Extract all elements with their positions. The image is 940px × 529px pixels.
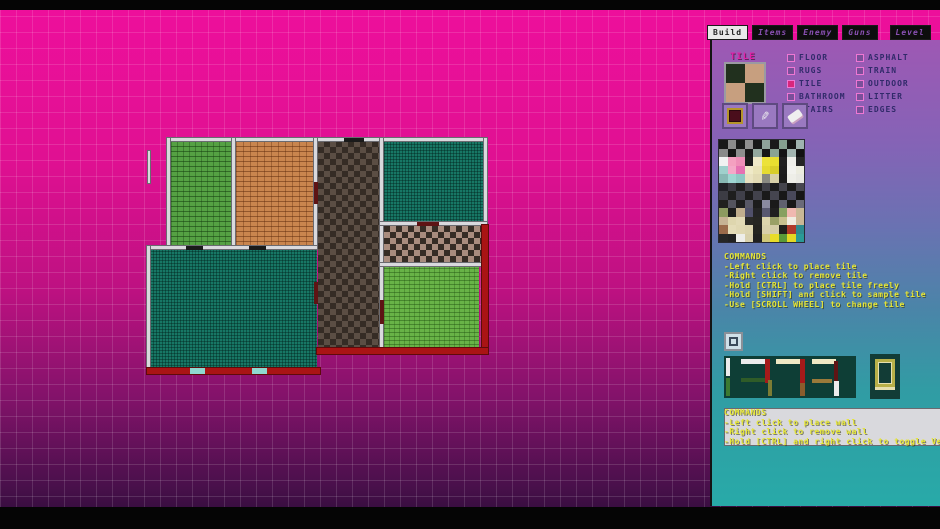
palette-tile[interactable] [753, 225, 762, 234]
palette-tile[interactable] [719, 149, 728, 158]
palette-tile[interactable] [796, 208, 805, 217]
checkbox-litter[interactable] [856, 93, 864, 101]
category-label: OUTDOOR [868, 79, 909, 88]
palette-tile[interactable] [787, 157, 796, 166]
palette-tile[interactable] [719, 217, 728, 226]
door-segment[interactable] [314, 182, 318, 204]
palette-tile[interactable] [796, 149, 805, 158]
wall-sample-segment[interactable] [726, 378, 730, 396]
category-label: TRAIN [868, 66, 897, 75]
palette-tile[interactable] [770, 234, 779, 243]
tab-guns[interactable]: Guns [842, 25, 877, 40]
eyedropper-icon: ✎ [760, 108, 771, 123]
wall-segment[interactable] [483, 137, 488, 226]
command-line: -Hold [SHIFT] and click to sample tile [724, 290, 926, 300]
tab-level[interactable]: Level [890, 25, 931, 40]
checkbox-tile[interactable] [787, 80, 795, 88]
palette-tile[interactable] [787, 208, 796, 217]
palette-tile[interactable] [736, 191, 745, 200]
palette-tile[interactable] [745, 200, 754, 209]
palette-tile[interactable] [753, 166, 762, 175]
category-label: LITTER [868, 92, 903, 101]
palette-tile[interactable] [719, 157, 728, 166]
palette-tile[interactable] [779, 225, 788, 234]
palette-tile[interactable] [736, 200, 745, 209]
palette-tile[interactable] [719, 234, 728, 243]
palette-tile[interactable] [762, 183, 771, 192]
category-bathroom[interactable]: BATHROOM [787, 90, 865, 103]
build-panel: TILE FLOORRUGSTILEBATHROOMSTAIRS ASPHALT… [710, 40, 940, 506]
command-line: -Hold [CTRL] to place tile freely [724, 281, 926, 291]
palette-tile[interactable] [770, 140, 779, 149]
palette-tile[interactable] [719, 183, 728, 192]
palette-tile[interactable] [719, 225, 728, 234]
palette-tile[interactable] [728, 208, 737, 217]
palette-tile[interactable] [787, 183, 796, 192]
room-dark-checker-hall[interactable] [318, 141, 381, 351]
command-line: -Right click to remove tile [724, 271, 926, 281]
palette-tile[interactable] [745, 183, 754, 192]
letterbox-bottom [0, 507, 940, 529]
wall-segment[interactable] [146, 245, 151, 372]
checkbox-train[interactable] [856, 67, 864, 75]
wall-segment[interactable] [147, 150, 151, 184]
palette-tile[interactable] [770, 183, 779, 192]
palette-tile[interactable] [753, 217, 762, 226]
wall-sample-segment[interactable] [741, 378, 765, 382]
command-line: -Use [SCROLL WHEEL] to change tile [724, 300, 926, 310]
wall-sample-segment[interactable] [812, 359, 836, 364]
palette-tile[interactable] [787, 225, 796, 234]
outer-red-wall[interactable] [316, 347, 489, 355]
category-tile[interactable]: TILE [787, 77, 865, 90]
category-train[interactable]: TRAIN [856, 64, 934, 77]
palette-tile[interactable] [787, 174, 796, 183]
palette-tile[interactable] [779, 140, 788, 149]
palette-tile[interactable] [745, 191, 754, 200]
wall-sample-segment[interactable] [726, 358, 730, 376]
palette-tile[interactable] [779, 217, 788, 226]
palette-tile[interactable] [719, 200, 728, 209]
palette-tile[interactable] [745, 157, 754, 166]
wall-commands-title: COMMANDS [724, 408, 940, 418]
room-green-brick-room[interactable] [171, 141, 232, 247]
palette-tile[interactable] [745, 140, 754, 149]
palette-tile[interactable] [762, 191, 771, 200]
palette-tile[interactable] [728, 140, 737, 149]
category-outdoor[interactable]: OUTDOOR [856, 77, 934, 90]
palette-tile[interactable] [728, 183, 737, 192]
palette-tile[interactable] [753, 200, 762, 209]
room-pink-checker-hall[interactable] [384, 226, 483, 264]
palette-tile[interactable] [728, 234, 737, 243]
palette-tile[interactable] [770, 191, 779, 200]
wall-segment[interactable] [231, 137, 236, 248]
wall-sample-segment[interactable] [834, 361, 838, 381]
selected-wall-tile[interactable] [870, 354, 900, 399]
palette-tile[interactable] [719, 140, 728, 149]
wall-sample-segment[interactable] [741, 359, 765, 364]
palette-tile[interactable] [770, 149, 779, 158]
fill-tool-button[interactable] [722, 103, 748, 129]
palette-tile[interactable] [762, 217, 771, 226]
wall-segment[interactable] [166, 137, 488, 142]
palette-tile[interactable] [796, 140, 805, 149]
palette-tile[interactable] [787, 149, 796, 158]
palette-tile[interactable] [779, 149, 788, 158]
wall-segment[interactable] [146, 245, 318, 250]
palette-tile[interactable] [719, 166, 728, 175]
palette-tile[interactable] [762, 200, 771, 209]
tile-commands-title: COMMANDS [724, 252, 926, 262]
wall-sample-segment[interactable] [768, 380, 772, 396]
wall-commands-lines: -Left click to place wall-Right click to… [724, 418, 940, 447]
door-segment[interactable] [344, 138, 364, 142]
wall-sample-segment[interactable] [812, 379, 832, 383]
palette-tile[interactable] [779, 157, 788, 166]
palette-tile[interactable] [770, 157, 779, 166]
palette-tile[interactable] [736, 217, 745, 226]
palette-tile[interactable] [787, 166, 796, 175]
outer-red-wall[interactable] [146, 367, 321, 375]
palette-tile[interactable] [762, 208, 771, 217]
palette-tile[interactable] [796, 234, 805, 243]
palette-tile[interactable] [745, 149, 754, 158]
palette-tile[interactable] [762, 149, 771, 158]
checkbox-rugs[interactable] [787, 67, 795, 75]
palette-tile[interactable] [719, 174, 728, 183]
palette-tile[interactable] [796, 174, 805, 183]
eraser-tool-button[interactable] [782, 103, 808, 129]
door-segment[interactable] [314, 282, 318, 304]
palette-tile[interactable] [770, 174, 779, 183]
door-segment[interactable] [249, 246, 266, 250]
category-asphalt[interactable]: ASPHALT [856, 51, 934, 64]
category-rugs[interactable]: RUGS [787, 64, 865, 77]
tab-bar: BuildItemsEnemyGunsLevel [707, 25, 940, 40]
palette-tile[interactable] [745, 225, 754, 234]
palette-tile[interactable] [719, 208, 728, 217]
room-teal-room-bottom[interactable] [150, 250, 317, 369]
palette-tile[interactable] [787, 234, 796, 243]
command-line: -Hold [CTRL] and right click to toggle V… [724, 437, 940, 447]
wall-segment[interactable] [379, 262, 488, 267]
category-edges[interactable]: EDGES [856, 103, 934, 116]
tile-preview-quad [726, 83, 745, 102]
palette-tile[interactable] [779, 208, 788, 217]
door-segment[interactable] [186, 246, 203, 250]
wall-sample-segment[interactable] [800, 359, 805, 383]
palette-tile[interactable] [745, 208, 754, 217]
palette-tile[interactable] [770, 217, 779, 226]
palette-tile[interactable] [736, 183, 745, 192]
palette-tile[interactable] [762, 234, 771, 243]
room-light-green-room[interactable] [384, 267, 479, 349]
palette-tile[interactable] [762, 140, 771, 149]
checkbox-outdoor[interactable] [856, 80, 864, 88]
palette-tile[interactable] [728, 157, 737, 166]
tile-commands: COMMANDS -Left click to place tile-Right… [724, 252, 926, 309]
tool-bar: ✎ [722, 103, 808, 129]
room-teal-room-top[interactable] [384, 141, 483, 223]
room-orange-brick-room[interactable] [236, 141, 315, 247]
wall-palette-strip[interactable] [724, 356, 856, 398]
palette-tile[interactable] [796, 200, 805, 209]
palette-tile[interactable] [736, 208, 745, 217]
wall-segment[interactable] [166, 137, 171, 247]
palette-tile[interactable] [796, 217, 805, 226]
palette-tile[interactable] [728, 174, 737, 183]
category-label: BATHROOM [799, 92, 846, 101]
wall-mode-icon [729, 337, 738, 346]
palette-tile[interactable] [787, 217, 796, 226]
outer-red-wall[interactable] [481, 224, 489, 355]
eyedropper-tool-button[interactable]: ✎ [752, 103, 778, 129]
palette-tile[interactable] [753, 140, 762, 149]
palette-tile[interactable] [796, 225, 805, 234]
wall-commands: COMMANDS -Left click to place wall-Right… [724, 408, 940, 446]
palette-tile[interactable] [762, 166, 771, 175]
palette-tile[interactable] [796, 157, 805, 166]
palette-tile[interactable] [787, 191, 796, 200]
palette-tile[interactable] [745, 174, 754, 183]
palette-tile[interactable] [728, 191, 737, 200]
palette-tile[interactable] [753, 191, 762, 200]
palette-tile[interactable] [728, 200, 737, 209]
palette-tile[interactable] [770, 225, 779, 234]
door-segment[interactable] [380, 300, 384, 324]
tile-preview-quad [745, 64, 764, 83]
palette-tile[interactable] [753, 183, 762, 192]
eraser-icon [787, 109, 803, 124]
door-segment[interactable] [190, 368, 205, 374]
door-segment[interactable] [252, 368, 267, 374]
palette-tile[interactable] [753, 174, 762, 183]
command-line: -Left click to place tile [724, 262, 926, 272]
category-label: EDGES [868, 105, 897, 114]
palette-tile[interactable] [796, 183, 805, 192]
tile-category-column-right: ASPHALTTRAINOUTDOORLITTEREDGES [856, 51, 934, 116]
palette-tile[interactable] [728, 217, 737, 226]
fill-tool-icon [727, 108, 743, 124]
palette-tile[interactable] [779, 234, 788, 243]
tile-palette [718, 139, 805, 243]
palette-tile[interactable] [779, 183, 788, 192]
palette-tile[interactable] [762, 174, 771, 183]
palette-tile[interactable] [770, 200, 779, 209]
wall-sample-segment[interactable] [776, 359, 800, 364]
palette-tile[interactable] [779, 200, 788, 209]
tab-enemy[interactable]: Enemy [797, 25, 838, 40]
palette-tile[interactable] [736, 140, 745, 149]
wall-mode-button[interactable] [724, 332, 743, 351]
palette-tile[interactable] [762, 225, 771, 234]
palette-tile[interactable] [762, 157, 771, 166]
palette-tile[interactable] [753, 149, 762, 158]
palette-tile[interactable] [736, 166, 745, 175]
category-label: RUGS [799, 66, 822, 75]
palette-tile[interactable] [770, 166, 779, 175]
selected-wall-frame-icon [875, 359, 895, 387]
category-label: TILE [799, 79, 822, 88]
tab-build[interactable]: Build [707, 25, 748, 40]
palette-tile[interactable] [736, 174, 745, 183]
palette-tile[interactable] [728, 149, 737, 158]
letterbox-top [0, 0, 940, 10]
palette-tile[interactable] [796, 191, 805, 200]
palette-tile[interactable] [736, 234, 745, 243]
category-label: ASPHALT [868, 53, 909, 62]
category-label: FLOOR [799, 53, 828, 62]
palette-tile[interactable] [779, 174, 788, 183]
palette-tile[interactable] [779, 191, 788, 200]
tab-items[interactable]: Items [752, 25, 793, 40]
category-floor[interactable]: FLOOR [787, 51, 865, 64]
palette-tile[interactable] [745, 166, 754, 175]
palette-tile[interactable] [753, 234, 762, 243]
palette-tile[interactable] [728, 225, 737, 234]
palette-tile[interactable] [753, 208, 762, 217]
palette-tile[interactable] [736, 149, 745, 158]
command-line: -Left click to place wall [724, 418, 940, 428]
checkbox-floor[interactable] [787, 54, 795, 62]
checkbox-asphalt[interactable] [856, 54, 864, 62]
palette-tile[interactable] [753, 157, 762, 166]
palette-tile[interactable] [745, 217, 754, 226]
selected-tile-preview [724, 62, 766, 104]
palette-tile[interactable] [796, 166, 805, 175]
palette-tile[interactable] [779, 166, 788, 175]
door-segment[interactable] [417, 222, 439, 226]
tile-section-label: TILE [730, 52, 756, 62]
tile-preview-quad [726, 64, 745, 83]
tile-commands-lines: -Left click to place tile-Right click to… [724, 262, 926, 310]
palette-tile[interactable] [745, 234, 754, 243]
palette-tile[interactable] [728, 166, 737, 175]
wall-sample-segment[interactable] [834, 381, 839, 396]
tile-preview-quad [745, 83, 764, 102]
palette-tile[interactable] [736, 225, 745, 234]
command-line: -Right click to remove wall [724, 427, 940, 437]
palette-tile[interactable] [787, 200, 796, 209]
checkbox-bathroom[interactable] [787, 93, 795, 101]
checkbox-edges[interactable] [856, 106, 864, 114]
palette-tile[interactable] [770, 208, 779, 217]
category-litter[interactable]: LITTER [856, 90, 934, 103]
wall-sample-segment[interactable] [800, 383, 805, 396]
palette-tile[interactable] [719, 191, 728, 200]
palette-tile[interactable] [736, 157, 745, 166]
palette-tile[interactable] [787, 140, 796, 149]
